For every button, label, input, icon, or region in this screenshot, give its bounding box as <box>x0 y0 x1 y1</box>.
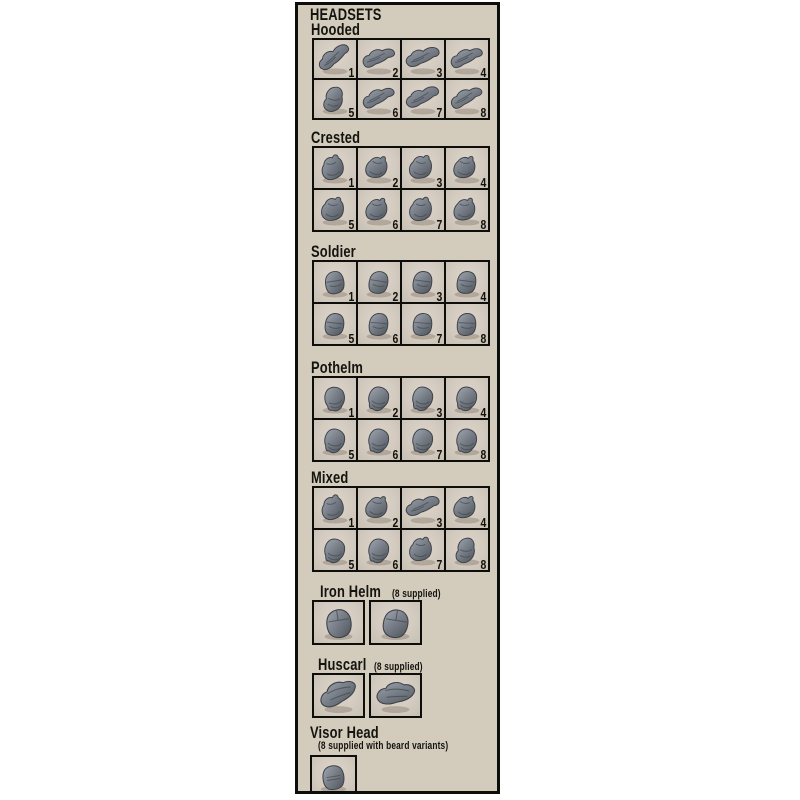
section-title: Iron Helm <box>320 584 381 599</box>
product-photo-cell: 4 <box>446 378 488 418</box>
cell-number: 4 <box>480 516 486 528</box>
section-label-row: Crested <box>311 130 497 145</box>
cell-number: 5 <box>348 558 354 570</box>
photo-grid <box>312 600 497 645</box>
cell-number: 2 <box>392 516 398 528</box>
product-photo-cell: 7 <box>402 530 444 570</box>
cell-number: 8 <box>480 106 486 118</box>
photo-grid: 12345678 <box>312 260 490 346</box>
section-title: Pothelm <box>311 360 363 375</box>
product-photo-cell <box>369 600 422 645</box>
cell-number: 5 <box>348 332 354 344</box>
section-label-row: Pothelm <box>311 360 497 375</box>
miniature-head-photo <box>371 602 420 643</box>
section-label-row: Huscarl(8 supplied) <box>318 657 497 672</box>
product-photo-cell: 6 <box>358 530 400 570</box>
section-iron-helm: Iron Helm(8 supplied) <box>298 584 497 645</box>
cell-number: 4 <box>480 406 486 418</box>
product-photo-cell: 3 <box>402 262 444 302</box>
product-photo-cell: 8 <box>446 530 488 570</box>
cell-number: 8 <box>480 332 486 344</box>
cell-number: 7 <box>436 218 442 230</box>
supplied-note: (8 supplied) <box>392 589 441 600</box>
product-photo-cell: 5 <box>314 304 356 344</box>
section-label-row: Soldier <box>311 244 497 259</box>
section-title: Huscarl <box>318 657 366 672</box>
section-soldier: Soldier12345678 <box>298 244 497 346</box>
miniature-head-photo <box>312 757 355 794</box>
product-photo-cell: 1 <box>314 262 356 302</box>
cell-number: 2 <box>392 290 398 302</box>
product-photo-cell: 3 <box>402 40 444 78</box>
section-label-row: Visor Head <box>310 725 497 740</box>
cell-number: 1 <box>348 176 354 188</box>
cell-number: 5 <box>348 448 354 460</box>
section-title: Crested <box>311 130 360 145</box>
cell-number: 1 <box>348 406 354 418</box>
product-photo-cell: 7 <box>402 80 444 118</box>
cell-number: 3 <box>436 66 442 78</box>
section-title: Soldier <box>311 244 356 259</box>
cell-number: 3 <box>436 290 442 302</box>
cell-number: 6 <box>392 106 398 118</box>
product-photo-cell: 5 <box>314 80 356 118</box>
cell-number: 8 <box>480 448 486 460</box>
supplied-note: (8 supplied with beard variants) <box>318 741 448 752</box>
product-photo-cell: 3 <box>402 488 444 528</box>
product-photo-cell: 5 <box>314 530 356 570</box>
product-photo-cell: 3 <box>402 378 444 418</box>
product-photo-cell: 2 <box>358 40 400 78</box>
section-label-row: Mixed <box>311 470 497 485</box>
photo-grid: 12345678 <box>312 38 490 120</box>
product-photo-cell: 6 <box>358 80 400 118</box>
product-photo-cell: 3 <box>402 148 444 188</box>
cell-number: 5 <box>348 106 354 118</box>
cell-number: 2 <box>392 406 398 418</box>
miniature-head-photo <box>314 602 363 643</box>
product-photo-cell: 6 <box>358 190 400 230</box>
cell-number: 7 <box>436 448 442 460</box>
section-title: Visor Head <box>310 725 379 740</box>
product-photo-cell: 5 <box>314 420 356 460</box>
cell-number: 3 <box>436 516 442 528</box>
product-photo-cell: 6 <box>358 420 400 460</box>
cell-number: 2 <box>392 66 398 78</box>
cell-number: 7 <box>436 332 442 344</box>
product-photo-cell: 1 <box>314 148 356 188</box>
product-photo-cell: 7 <box>402 190 444 230</box>
product-photo-cell: 7 <box>402 420 444 460</box>
product-photo-cell: 4 <box>446 488 488 528</box>
product-photo-cell: 1 <box>314 488 356 528</box>
cell-number: 3 <box>436 176 442 188</box>
cell-number: 5 <box>348 218 354 230</box>
sections: Hooded12345678Crested12345678Soldier1234… <box>298 22 497 794</box>
product-photo-cell: 2 <box>358 488 400 528</box>
section-huscarl: Huscarl(8 supplied) <box>298 657 497 718</box>
product-photo-cell: 8 <box>446 80 488 118</box>
section-label-row: Hooded <box>311 22 497 37</box>
photo-grid <box>312 673 497 718</box>
section-crested: Crested12345678 <box>298 130 497 232</box>
product-photo-cell: 5 <box>314 190 356 230</box>
cell-number: 1 <box>348 516 354 528</box>
catalog-panel: HEADSETS Hooded12345678Crested12345678So… <box>295 2 500 794</box>
section-mixed: Mixed12345678 <box>298 470 497 572</box>
section-visor-head: Visor Head(8 supplied with beard variant… <box>298 725 497 794</box>
cell-number: 6 <box>392 558 398 570</box>
product-photo-cell: 2 <box>358 148 400 188</box>
miniature-head-photo <box>314 675 363 716</box>
cell-number: 4 <box>480 290 486 302</box>
cell-number: 3 <box>436 406 442 418</box>
product-photo-cell: 2 <box>358 262 400 302</box>
photo-grid: 12345678 <box>312 486 490 572</box>
section-title: Mixed <box>311 470 348 485</box>
product-photo-cell: 8 <box>446 190 488 230</box>
product-photo-cell <box>369 673 422 718</box>
photo-grid: 12345678 <box>312 376 490 462</box>
product-photo-cell: 4 <box>446 262 488 302</box>
cell-number: 7 <box>436 106 442 118</box>
cell-number: 7 <box>436 558 442 570</box>
cell-number: 6 <box>392 448 398 460</box>
cell-number: 2 <box>392 176 398 188</box>
product-photo-cell <box>310 755 357 794</box>
section-hooded: Hooded12345678 <box>298 22 497 120</box>
cell-number: 6 <box>392 218 398 230</box>
product-photo-cell: 4 <box>446 148 488 188</box>
product-photo-cell: 1 <box>314 378 356 418</box>
cell-number: 8 <box>480 218 486 230</box>
product-photo-cell: 8 <box>446 420 488 460</box>
product-photo-cell: 7 <box>402 304 444 344</box>
photo-grid: 12345678 <box>312 146 490 232</box>
cell-number: 6 <box>392 332 398 344</box>
section-title: Hooded <box>311 22 360 37</box>
supplied-note: (8 supplied) <box>374 662 423 673</box>
cell-number: 8 <box>480 558 486 570</box>
miniature-head-photo <box>371 675 420 716</box>
cell-number: 1 <box>348 290 354 302</box>
product-photo-cell <box>312 600 365 645</box>
page: HEADSETS Hooded12345678Crested12345678So… <box>0 0 800 800</box>
product-photo-cell: 8 <box>446 304 488 344</box>
section-pothelm: Pothelm12345678 <box>298 360 497 462</box>
product-photo-cell: 2 <box>358 378 400 418</box>
product-photo-cell: 6 <box>358 304 400 344</box>
product-photo-cell <box>312 673 365 718</box>
product-photo-cell: 1 <box>314 40 356 78</box>
section-label-row: Iron Helm(8 supplied) <box>320 584 497 599</box>
cell-number: 1 <box>348 66 354 78</box>
cell-number: 4 <box>480 66 486 78</box>
cell-number: 4 <box>480 176 486 188</box>
photo-grid <box>310 755 497 794</box>
product-photo-cell: 4 <box>446 40 488 78</box>
